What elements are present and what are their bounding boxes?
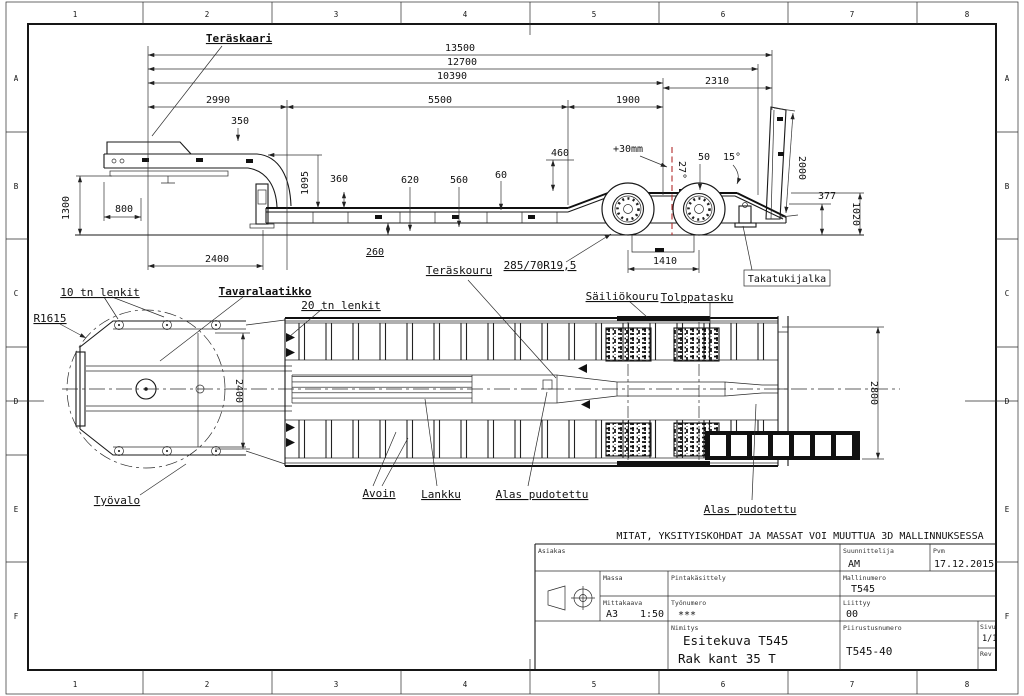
tb-rev-label: Rev (980, 650, 992, 658)
tb-tyonumero-label: Työnumero (671, 599, 706, 607)
tb-asiakas-label: Asiakas (538, 547, 565, 555)
dim-5500: 5500 (428, 95, 452, 106)
dim-27deg: 27° (676, 161, 687, 179)
tb-suunnittelija-value: AM (848, 559, 860, 570)
tb-nimitys-line1: Esitekuva T545 (683, 633, 788, 648)
label-tavaralaatikko: Tavaralaatikko (219, 285, 312, 298)
grid-col: 7 (850, 680, 855, 689)
dim-377: 377 (818, 191, 836, 202)
label-alas-pudotettu-1: Alas pudotettu (496, 488, 589, 501)
dim-12700: 12700 (447, 57, 477, 68)
dim-460: 460 (551, 148, 569, 159)
gooseneck (104, 142, 291, 228)
grid-row: C (14, 289, 19, 298)
tb-mallinumero-value: T545 (851, 584, 875, 595)
tb-pvm-label: Pvm (933, 547, 945, 555)
grid-row: D (1005, 397, 1010, 406)
tb-sivu-value: 1/1 (982, 634, 997, 644)
dim-10390: 10390 (437, 71, 467, 82)
grid-col: 3 (334, 680, 339, 689)
title-block: Asiakas Suunnittelija AM Pvm 17.12.2015 … (535, 544, 997, 670)
tb-pintakasittely-label: Pintakäsittely (671, 574, 726, 582)
dim-1020: 1020 (850, 202, 861, 226)
dim-15deg: 15° (723, 152, 741, 163)
grid-col: 8 (965, 680, 970, 689)
label-sailiokouru: Säiliökouru (586, 290, 659, 303)
dim-1095: 1095 (300, 171, 311, 195)
dim-1900: 1900 (616, 95, 640, 106)
tb-nimitys-line2: Rak kant 35 T (678, 651, 776, 666)
plan-deck (285, 316, 860, 466)
grid-col: 6 (721, 10, 726, 19)
tb-liittyy-label: Liittyy (843, 599, 870, 607)
dim-1410: 1410 (653, 256, 677, 267)
grid-row: E (1005, 505, 1010, 514)
grid-row: A (1005, 74, 1010, 83)
dim-800: 800 (115, 204, 133, 215)
dim-2000: 2000 (796, 156, 807, 180)
dim-1300: 1300 (61, 196, 72, 220)
label-alas-pudotettu-2: Alas pudotettu (704, 503, 797, 516)
tb-tyonumero-value: *** (678, 610, 696, 621)
tb-mittakaava-label: Mittakaava (603, 599, 642, 607)
dim-60: 60 (495, 170, 507, 181)
grid-col: 7 (850, 10, 855, 19)
grid-row: C (1005, 289, 1010, 298)
label-teraskouru: Teräskouru (426, 264, 492, 277)
grid-row: B (1005, 182, 1010, 191)
label-takatukijalka: Takatukijalka (748, 274, 826, 285)
dim-260: 260 (366, 247, 384, 258)
label-lankku: Lankku (421, 488, 461, 501)
tb-sivu-label: Sivu (980, 623, 996, 631)
grid-col: 4 (463, 680, 468, 689)
rear-support-leg (735, 203, 756, 228)
grid-col: 2 (205, 10, 210, 19)
grid-col: 3 (334, 10, 339, 19)
grid-row: A (14, 74, 19, 83)
dim-2400-plan: 2400 (233, 379, 244, 403)
tb-scale-value: 1:50 (640, 609, 664, 620)
grid-col: 5 (592, 680, 597, 689)
tb-mallinumero-label: Mallinumero (843, 574, 886, 582)
label-r1615: R1615 (33, 312, 66, 325)
dim-350: 350 (231, 116, 249, 127)
lashing-triangles-center (578, 364, 590, 409)
dim-13500: 13500 (445, 43, 475, 54)
tb-piirustusnumero-value: T545-40 (846, 645, 892, 658)
tb-piirustusnumero-label: Piirustusnumero (843, 624, 902, 632)
sailiokouru-bar-top (617, 316, 710, 321)
label-10tn-lenkit: 10 tn lenkit (60, 286, 139, 299)
grid-col: 2 (205, 680, 210, 689)
plank-area (292, 376, 472, 403)
dim-2800: 2800 (868, 381, 879, 405)
drawing-canvas: 1 2 3 4 5 6 7 8 1 2 3 4 5 6 7 8 A B C D … (0, 0, 1024, 696)
dim-620: 620 (401, 175, 419, 186)
sailiokouru-bar-bottom (617, 461, 710, 466)
grid-row: D (14, 397, 19, 406)
label-tolppatasku: Tolppatasku (661, 291, 734, 304)
tb-sheet-size-value: A3 (606, 609, 618, 620)
projection-symbol-icon (548, 586, 595, 610)
wheel-front (602, 183, 654, 235)
grid-row: F (14, 612, 19, 621)
grid-col: 1 (73, 680, 78, 689)
grid-col: 6 (721, 680, 726, 689)
grid-row: E (14, 505, 19, 514)
grid-col: 8 (965, 10, 970, 19)
tb-pvm-value: 17.12.2015 (934, 559, 994, 570)
label-avoin: Avoin (362, 487, 395, 500)
grid-col: 1 (73, 10, 78, 19)
label-teraskaari: Teräskaari (206, 32, 273, 45)
grid-row: F (1005, 612, 1010, 621)
label-tyovalo: Työvalo (94, 494, 140, 507)
dim-50: 50 (698, 152, 710, 163)
label-20tn-lenkit: 20 tn lenkit (301, 299, 380, 312)
cad-drawing-sheet: 1 2 3 4 5 6 7 8 1 2 3 4 5 6 7 8 A B C D … (0, 0, 1024, 696)
dim-2310: 2310 (705, 76, 729, 87)
disclaimer-note: MITAT, YKSITYISKOHDAT JA MASSAT VOI MUUT… (616, 531, 983, 542)
grid-col: 5 (592, 10, 597, 19)
plan-view: 10 tn lenkit Tavaralaatikko 20 tn lenkit… (33, 285, 900, 516)
tb-suunnittelija-label: Suunnittelija (843, 547, 894, 555)
dim-560: 560 (450, 175, 468, 186)
rear-ramp-up (766, 107, 786, 219)
wheel-rear (673, 183, 725, 235)
folded-ramp (705, 431, 860, 460)
dim-2990: 2990 (206, 95, 230, 106)
grid-row: B (14, 182, 19, 191)
tb-massa-label: Massa (603, 574, 623, 582)
tb-nimitys-label: Nimitys (671, 624, 698, 632)
tb-liittyy-value: 00 (846, 609, 858, 620)
label-tire-size: 285/70R19,5 (504, 259, 577, 272)
grid-col: 4 (463, 10, 468, 19)
dim-plus30mm: +30mm (613, 144, 643, 155)
dim-360: 360 (330, 174, 348, 185)
dim-2400-side: 2400 (205, 254, 229, 265)
